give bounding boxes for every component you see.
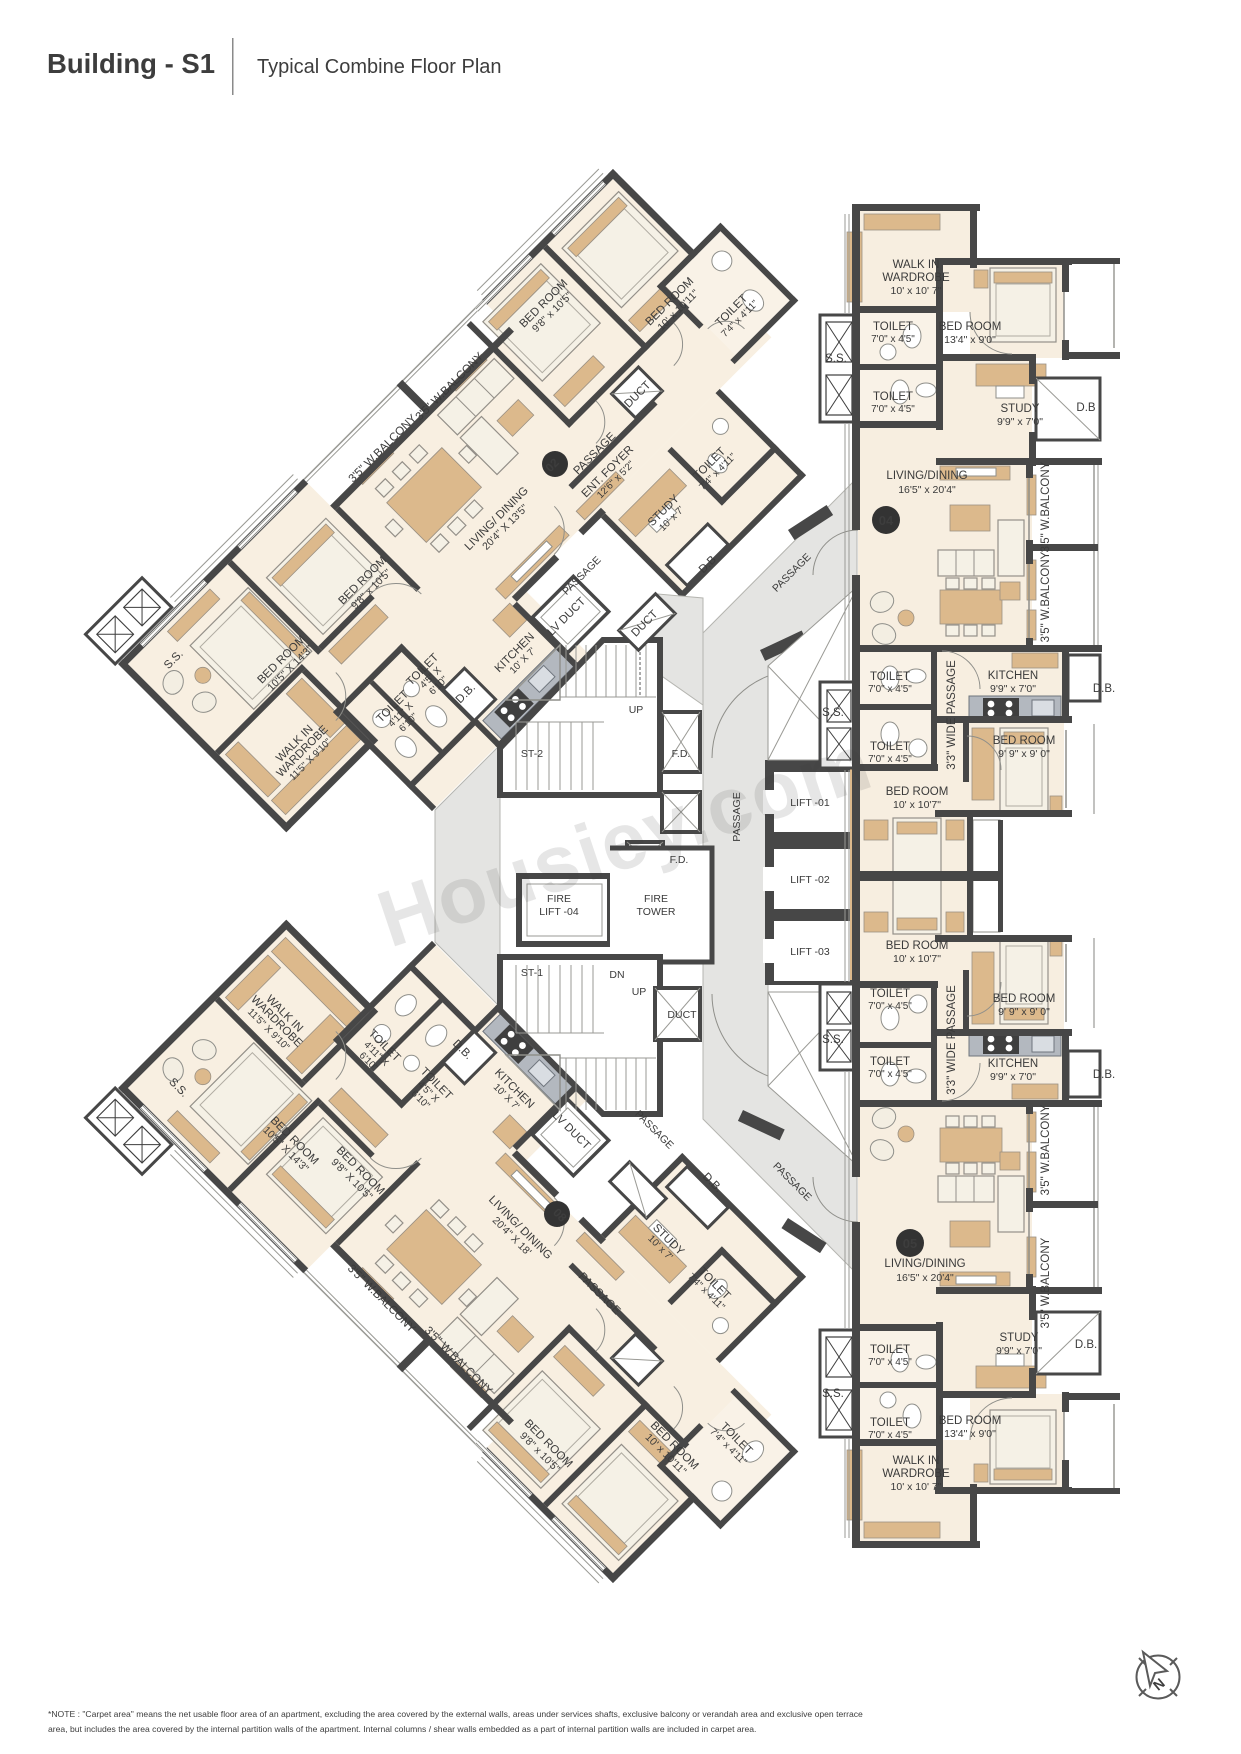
svg-text:3'3" WIDE PASSAGE: 3'3" WIDE PASSAGE: [946, 985, 958, 1095]
svg-text:BED ROOM13'4" x 9'0": BED ROOM13'4" x 9'0": [939, 1415, 1002, 1440]
svg-text:3'5" W.BALCONY: 3'5" W.BALCONY: [1040, 461, 1052, 552]
svg-text:BED ROOM10' x 10'7": BED ROOM10' x 10'7": [886, 786, 949, 811]
svg-text:STUDY9'9" x 7'0": STUDY9'9" x 7'0": [996, 1332, 1042, 1357]
svg-text:F.D.: F.D.: [672, 748, 691, 760]
svg-text:KITCHEN9'9" x 7'0": KITCHEN9'9" x 7'0": [988, 1058, 1038, 1083]
svg-text:area, but includes the area co: area, but includes the area covered by t…: [48, 1724, 756, 1734]
svg-text:BED ROOM9' 9" x 9' 0": BED ROOM9' 9" x 9' 0": [993, 993, 1056, 1018]
svg-text:UP: UP: [629, 704, 644, 716]
svg-text:S.S.: S.S.: [825, 353, 847, 365]
svg-text:3'5" W.BALCONY: 3'5" W.BALCONY: [1040, 1104, 1052, 1195]
svg-text:3'5" W.BALCONY: 3'5" W.BALCONY: [1040, 1237, 1052, 1328]
svg-text:S.S.: S.S.: [822, 1388, 844, 1400]
svg-text:ST-2: ST-2: [521, 748, 543, 760]
svg-text:BED ROOM10' x 10'7": BED ROOM10' x 10'7": [886, 940, 949, 965]
svg-text:LIFT -02: LIFT -02: [790, 874, 830, 886]
svg-text:D.B: D.B: [1076, 402, 1096, 414]
svg-text:Typical Combine Floor Plan: Typical Combine Floor Plan: [257, 56, 502, 78]
svg-text:3'3" WIDE PASSAGE: 3'3" WIDE PASSAGE: [946, 660, 958, 770]
svg-text:BED ROOM9' 9" x 9' 0": BED ROOM9' 9" x 9' 0": [993, 735, 1056, 760]
svg-text:DN: DN: [609, 969, 624, 981]
svg-text:STUDY9'9" x 7'0": STUDY9'9" x 7'0": [997, 403, 1043, 428]
svg-text:BED ROOM13'4" x 9'0": BED ROOM13'4" x 9'0": [939, 321, 1002, 346]
svg-text:D.B.: D.B.: [1075, 1339, 1097, 1351]
svg-text:UP: UP: [632, 986, 647, 998]
svg-text:KITCHEN9'9" x 7'0": KITCHEN9'9" x 7'0": [988, 670, 1038, 695]
svg-text:S.S.: S.S.: [822, 1034, 844, 1046]
svg-text:D.B.: D.B.: [1093, 1069, 1115, 1081]
svg-text:DUCT: DUCT: [667, 1009, 697, 1021]
svg-text:LIFT -03: LIFT -03: [790, 946, 830, 958]
svg-text:S.S.: S.S.: [822, 707, 844, 719]
svg-text:3'5" W.BALCONY: 3'5" W.BALCONY: [1040, 551, 1052, 642]
svg-text:ST-1: ST-1: [521, 967, 543, 979]
svg-text:05: 05: [903, 1236, 917, 1251]
svg-text:Building - S1: Building - S1: [47, 48, 215, 79]
svg-text:D.B.: D.B.: [1093, 683, 1115, 695]
svg-text:04: 04: [879, 513, 894, 528]
svg-text:*NOTE : "Carpet area" means th: *NOTE : "Carpet area" means the net usab…: [48, 1709, 863, 1719]
